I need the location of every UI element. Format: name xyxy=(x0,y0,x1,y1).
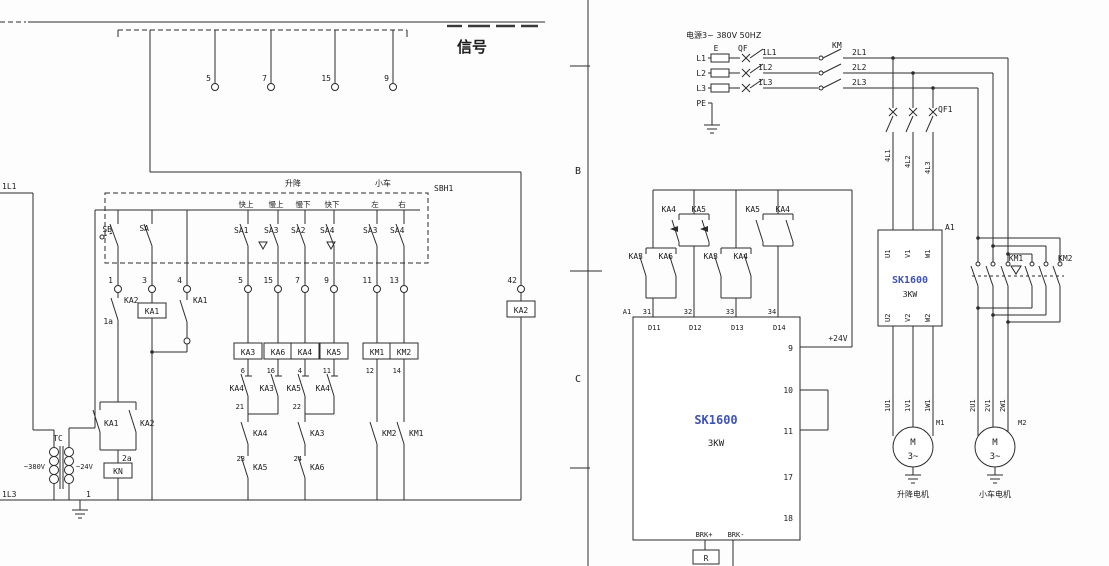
ctrl-pin-9: 9 xyxy=(788,344,793,353)
supply-title: 电源3~ 380V 50HZ xyxy=(686,30,762,40)
col-label: 右 xyxy=(398,199,406,209)
ctrl-contact: KA4 xyxy=(734,252,749,261)
ctrl-pin-brkp: BRK+ xyxy=(696,531,713,539)
ctrl-contact: KA4 xyxy=(662,205,677,214)
ctrl-contact: KA3 xyxy=(704,252,719,261)
sb-label: SB xyxy=(102,225,112,234)
wire-2a: 2a xyxy=(122,454,132,463)
phase-l3: L3 xyxy=(696,84,706,93)
wire-2l2: 2L2 xyxy=(852,63,867,72)
zone-b: B xyxy=(575,166,581,177)
interlock-label: KA3 xyxy=(260,384,275,393)
sbh1-ref: SBH1 xyxy=(434,184,453,193)
signal-label: 信号 xyxy=(457,38,487,56)
coil-wire: 6 xyxy=(241,367,245,375)
coil-wire: 14 xyxy=(393,367,401,375)
qf-label: QF xyxy=(738,44,748,53)
series-contact: KA3 xyxy=(310,429,325,438)
series-contact: KA5 xyxy=(253,463,268,472)
ctrl-term: 33 xyxy=(726,308,734,316)
col-label: 慢上 xyxy=(269,199,284,209)
e-label: E xyxy=(714,44,719,53)
tc-label: TC xyxy=(53,434,63,443)
group-label-hoist: 升降 xyxy=(285,178,301,188)
switch-label: SA1 xyxy=(234,226,249,235)
pin-v1: V1 xyxy=(904,250,912,258)
wire-2l3: 2L3 xyxy=(852,78,867,87)
ctrl-contact: KA5 xyxy=(746,205,761,214)
wiring-diagram: 信号 5 7 15 9 1L1 SBH1 升降 小车 xyxy=(0,0,1109,566)
col-label: 快上 xyxy=(239,199,254,209)
interlock-label: KA4 xyxy=(316,384,331,393)
rail-wire-number: 1 xyxy=(86,490,91,499)
hold-ka1-label: KA1 xyxy=(104,419,119,428)
wire-4l3: 4L3 xyxy=(924,161,932,174)
wire-4l1: 4L1 xyxy=(884,149,892,162)
ctrl-pin-10: 10 xyxy=(783,386,793,395)
pin-u2: U2 xyxy=(884,314,892,322)
phase-l1: L1 xyxy=(696,54,706,63)
wire-1w1: 1W1 xyxy=(924,399,932,412)
wire-4l2: 4L2 xyxy=(904,155,912,168)
ctrl-model: SK1600 xyxy=(694,413,737,427)
phase-l2: L2 xyxy=(696,69,706,78)
drive-power: 3KW xyxy=(903,290,918,299)
motor-phase: 3~ xyxy=(908,452,919,462)
brake-resistor-label: R xyxy=(704,554,709,563)
col-label: 慢下 xyxy=(296,199,311,209)
wire-1l2: 1L2 xyxy=(758,63,773,72)
ctrl-term: 31 xyxy=(643,308,651,316)
ctrl-power: 3KW xyxy=(708,439,725,449)
drive-model: SK1600 xyxy=(892,275,928,286)
terminal-number: 13 xyxy=(389,276,399,285)
wire-2w1: 2W1 xyxy=(999,399,1007,412)
page-background xyxy=(0,0,1109,566)
pin-w1: W1 xyxy=(924,250,932,258)
signal-terminal xyxy=(332,84,339,91)
terminal-number: 1 xyxy=(108,276,113,285)
coil-wire: 16 xyxy=(267,367,275,375)
coil-wire: 12 xyxy=(366,367,374,375)
qf1-label: QF1 xyxy=(938,105,953,114)
junction-21: 21 xyxy=(236,403,244,411)
zone-c: C xyxy=(575,374,581,385)
interlock-label: KA5 xyxy=(287,384,302,393)
coil-wire: 11 xyxy=(323,367,331,375)
kn-coil-label: KN xyxy=(113,467,123,476)
signal-terminal-number: 9 xyxy=(384,74,389,83)
motor-ref: M2 xyxy=(1018,419,1026,427)
wire-label-1l1: 1L1 xyxy=(2,182,17,191)
coil-wire: 4 xyxy=(298,367,302,375)
wire-1l1: 1L1 xyxy=(762,48,777,57)
pin-v2: V2 xyxy=(904,314,912,322)
signal-terminal xyxy=(268,84,275,91)
km2-label: KM2 xyxy=(1058,254,1073,263)
secondary-voltage: ~24V xyxy=(76,463,94,471)
terminal-number: 3 xyxy=(142,276,147,285)
signal-terminal-number: 15 xyxy=(321,74,331,83)
series-contact: KA6 xyxy=(310,463,325,472)
group-label-trolley: 小车 xyxy=(375,178,391,188)
signal-terminal xyxy=(212,84,219,91)
terminal-number: 4 xyxy=(177,276,182,285)
ctrl-term: 32 xyxy=(684,308,692,316)
interlock-label: KA4 xyxy=(230,384,245,393)
ctrl-pin-d12: D12 xyxy=(689,324,702,332)
ctrl-box xyxy=(633,317,800,540)
phase-pe: PE xyxy=(696,99,706,108)
switch-label: SA4 xyxy=(390,226,405,235)
terminal-number: 9 xyxy=(324,276,329,285)
ctrl-ref: A1 xyxy=(623,308,631,316)
coil-label: KA6 xyxy=(271,348,286,357)
series-contact: KA4 xyxy=(253,429,268,438)
ctrl-term: 34 xyxy=(768,308,776,316)
ka2-coil-label: KA2 xyxy=(514,306,529,315)
signal-terminal-number: 7 xyxy=(262,74,267,83)
ctrl-pin-17: 17 xyxy=(783,473,793,482)
coil-label: KM2 xyxy=(397,348,412,357)
drive-ref: A1 xyxy=(945,223,955,232)
sa-label: SA xyxy=(139,224,149,233)
coil-label: KA5 xyxy=(327,348,342,357)
coil-label: KM1 xyxy=(370,348,385,357)
wire-label-1l3: 1L3 xyxy=(2,490,17,499)
terminal-42: 42 xyxy=(507,276,517,285)
ctrl-pin-d13: D13 xyxy=(731,324,744,332)
ctrl-pin-brkm: BRK- xyxy=(728,531,745,539)
wire-2u1: 2U1 xyxy=(969,399,977,412)
wire-1v1: 1V1 xyxy=(904,399,912,412)
terminal-number: 15 xyxy=(263,276,273,285)
schematic-page: 信号 5 7 15 9 1L1 SBH1 升降 小车 xyxy=(0,0,1109,566)
ctrl-contact: KA6 xyxy=(659,252,674,261)
motor-m: M xyxy=(910,438,916,448)
terminal-number: 7 xyxy=(295,276,300,285)
wire-1a: 1a xyxy=(103,317,113,326)
ka1-coil-label: KA1 xyxy=(145,307,160,316)
terminal-number: 5 xyxy=(238,276,243,285)
motor-m: M xyxy=(992,438,998,448)
motor-caption: 升降电机 xyxy=(897,489,929,499)
primary-voltage: ~380V xyxy=(24,463,46,471)
km-interlock: KM2 xyxy=(382,429,397,438)
wire-1l3: 1L3 xyxy=(758,78,773,87)
coil-label: KA3 xyxy=(241,348,256,357)
wire-2l1: 2L1 xyxy=(852,48,867,57)
pin-w2: W2 xyxy=(924,314,932,322)
motor-caption: 小车电机 xyxy=(979,489,1011,499)
motor-ref: M1 xyxy=(936,419,944,427)
col-label: 快下 xyxy=(325,199,340,209)
junction-22: 22 xyxy=(293,403,301,411)
km-interlock: KM1 xyxy=(409,429,424,438)
coil-label: KA4 xyxy=(298,348,313,357)
ctrl-pin-18: 18 xyxy=(783,514,793,523)
pin-u1: U1 xyxy=(884,250,892,258)
switch-label: SA3 xyxy=(363,226,378,235)
signal-terminal-number: 5 xyxy=(206,74,211,83)
switch-label: SA2 xyxy=(291,226,306,235)
signal-terminal xyxy=(390,84,397,91)
km1-label: KM1 xyxy=(1009,254,1024,263)
fuse xyxy=(711,69,729,77)
ctrl-contact: KA4 xyxy=(776,205,791,214)
switch-label: SA4 xyxy=(320,226,335,235)
ka2-contact-label: KA2 xyxy=(124,296,139,305)
col-label: 左 xyxy=(371,199,379,209)
wire-1u1: 1U1 xyxy=(884,399,892,412)
v24-label: +24V xyxy=(828,334,847,343)
fuse xyxy=(711,54,729,62)
terminal-number: 11 xyxy=(362,276,372,285)
ctrl-contact: KA3 xyxy=(629,252,644,261)
ctrl-pin-d11: D11 xyxy=(648,324,661,332)
ctrl-pin-d14: D14 xyxy=(773,324,786,332)
ctrl-contact: KA5 xyxy=(692,205,707,214)
ctrl-pin-11: 11 xyxy=(783,427,793,436)
fuse xyxy=(711,84,729,92)
ka1-contact-label: KA1 xyxy=(193,296,208,305)
wire-2v1: 2V1 xyxy=(984,399,992,412)
motor-phase: 3~ xyxy=(990,452,1001,462)
switch-label: SA3 xyxy=(264,226,279,235)
km-label: KM xyxy=(832,41,842,50)
